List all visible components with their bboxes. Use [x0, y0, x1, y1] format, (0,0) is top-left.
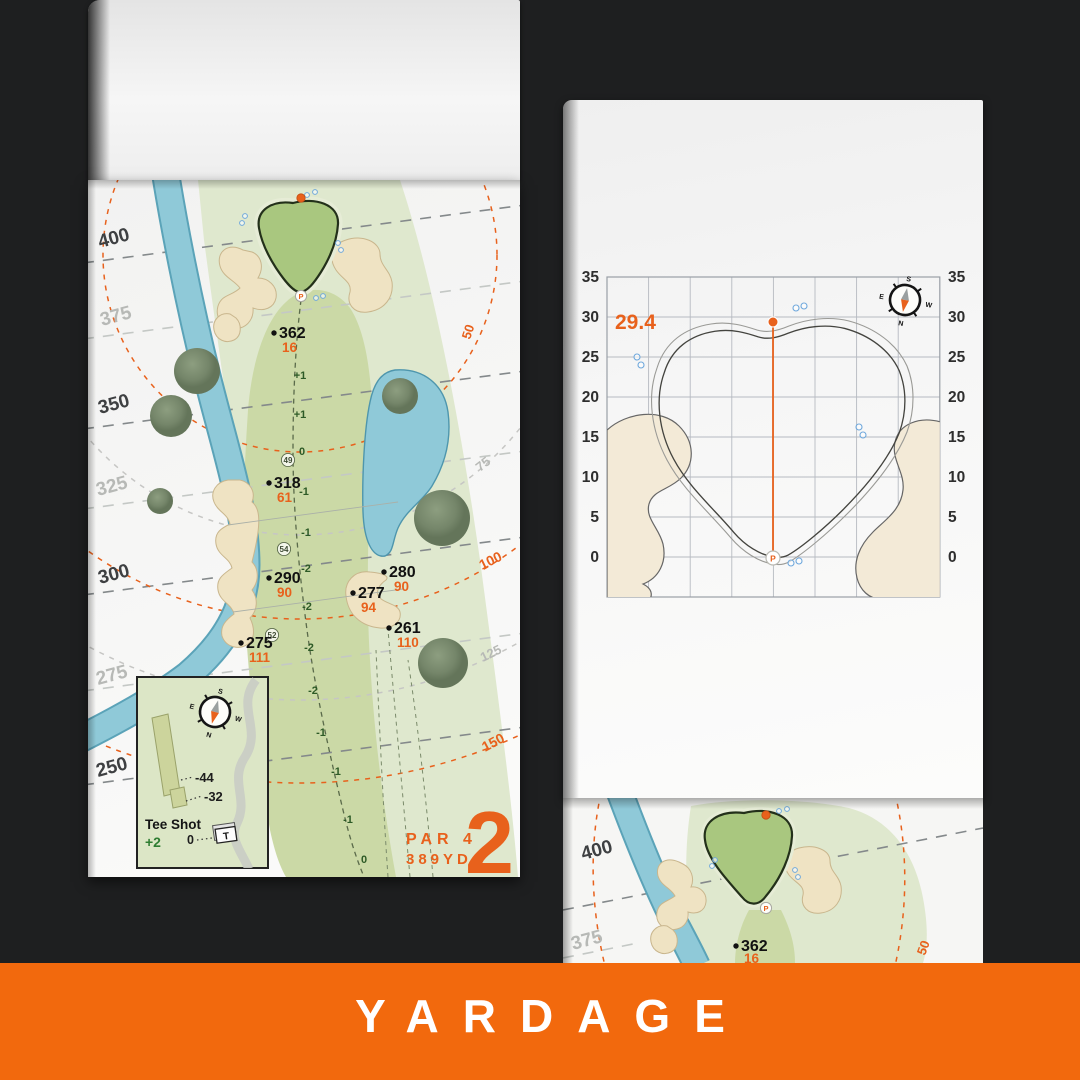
- tree: [414, 490, 470, 546]
- svg-text:-2: -2: [308, 685, 318, 697]
- yardage-book-poster: P 49 54 52 +1 +1 0 -1 -1 -2 -2 -2: [0, 0, 1080, 1080]
- green-outline: [652, 319, 913, 565]
- svg-text:10: 10: [948, 469, 965, 486]
- front-of-green-marker: P: [766, 551, 780, 565]
- front-marker-label: P: [298, 292, 303, 301]
- svg-text:20: 20: [948, 389, 965, 406]
- svg-text:10: 10: [582, 469, 599, 486]
- flipped-blank-page: [88, 0, 520, 180]
- front-of-green-marker: P: [295, 290, 306, 301]
- hole-map-svg: P 49 54 52 +1 +1 0 -1 -1 -2 -2 -2: [88, 180, 520, 877]
- svg-text:0: 0: [948, 549, 957, 566]
- svg-text:111: 111: [249, 650, 271, 665]
- tree: [382, 378, 418, 414]
- tree: [147, 488, 173, 514]
- svg-text:25: 25: [948, 349, 966, 366]
- svg-text:94: 94: [361, 600, 377, 615]
- svg-text:-2: -2: [302, 601, 312, 613]
- green-detail-page: P 29.4 3530 2520 1510 50 3530 2520 1: [563, 100, 983, 798]
- svg-text:375: 375: [98, 302, 134, 331]
- svg-text:325: 325: [94, 472, 130, 501]
- svg-text:W: W: [925, 302, 933, 310]
- svg-text:16: 16: [282, 340, 298, 355]
- bunker-greenside-left-low: [651, 926, 678, 954]
- svg-text:250: 250: [94, 753, 130, 781]
- next-page-svg: P 362 16 400 375 50: [563, 798, 983, 963]
- pin-position-dot: [762, 811, 770, 819]
- svg-text:S: S: [906, 276, 912, 284]
- tee-distance-zero: 0: [187, 833, 194, 847]
- bunker-greenside-left-low: [214, 314, 241, 342]
- svg-text:+1: +1: [294, 409, 307, 421]
- front-marker-label: P: [770, 554, 776, 564]
- svg-text:16: 16: [744, 951, 760, 963]
- detail-bunker-left: [607, 414, 691, 599]
- tree: [150, 395, 192, 437]
- svg-text:50: 50: [459, 323, 478, 341]
- svg-text:0: 0: [299, 446, 305, 458]
- svg-text:E: E: [879, 294, 885, 302]
- svg-text:75: 75: [473, 454, 494, 475]
- tee-inset-title: Tee Shot: [145, 817, 202, 832]
- svg-text:0: 0: [361, 854, 367, 866]
- svg-text:P: P: [763, 904, 768, 913]
- detail-bunkers: [607, 414, 941, 599]
- svg-text:N: N: [898, 320, 904, 328]
- svg-text:30: 30: [582, 309, 599, 326]
- green-detail-svg: P 29.4 3530 2520 1510 50 3530 2520 1: [563, 100, 983, 798]
- svg-text:0: 0: [590, 549, 599, 566]
- svg-text:90: 90: [394, 579, 409, 594]
- front-of-green-marker: P: [760, 902, 771, 913]
- svg-text:350: 350: [96, 390, 132, 418]
- next-hole-page: P 362 16 400 375 50: [563, 798, 983, 963]
- tree: [418, 638, 468, 688]
- pin-depth-value: 29.4: [615, 311, 656, 334]
- svg-text:20: 20: [582, 389, 599, 406]
- tee-marker-icon: T: [213, 823, 237, 844]
- yardage-banner: YARDAGE: [0, 963, 1080, 1080]
- svg-text:30: 30: [948, 309, 965, 326]
- svg-text:5: 5: [948, 509, 957, 526]
- svg-text:100: 100: [476, 548, 504, 573]
- svg-text:90: 90: [277, 585, 292, 600]
- depth-ticks-right: 3530 2520 1510 50: [948, 269, 966, 566]
- svg-text:375: 375: [569, 926, 605, 955]
- svg-text:-1: -1: [316, 727, 326, 739]
- svg-text:25: 25: [582, 349, 600, 366]
- tee-box-forward: [170, 787, 187, 808]
- distance-line-labels: 400 375: [569, 836, 615, 954]
- svg-text:5: 5: [590, 509, 599, 526]
- pin-position-dot: [297, 194, 305, 202]
- svg-text:35: 35: [582, 269, 600, 286]
- tee-elevation: +2: [145, 834, 161, 850]
- svg-text:400: 400: [96, 224, 132, 252]
- svg-text:-1: -1: [301, 527, 311, 539]
- svg-text:110: 110: [397, 635, 419, 650]
- svg-text:300: 300: [96, 560, 132, 588]
- svg-text:35: 35: [948, 269, 966, 286]
- hole-number: 2: [465, 793, 514, 877]
- svg-text:400: 400: [579, 836, 615, 864]
- hole-map-page: P 49 54 52 +1 +1 0 -1 -1 -2 -2 -2: [88, 180, 520, 877]
- banner-title: YARDAGE: [331, 989, 749, 1043]
- svg-text:-2: -2: [301, 563, 311, 575]
- svg-text:-1: -1: [343, 814, 353, 826]
- tee-distance-right: -32: [204, 789, 223, 804]
- compass-icon: S N W E: [875, 272, 937, 333]
- depth-ticks-left: 3530 2520 1510 50: [582, 269, 600, 566]
- svg-text:15: 15: [948, 429, 966, 446]
- svg-text:61: 61: [277, 490, 293, 505]
- tree: [174, 348, 220, 394]
- detail-bunker-right: [856, 420, 941, 599]
- width-value: 49: [284, 456, 293, 465]
- svg-text:15: 15: [582, 429, 600, 446]
- yardage-label: 389YD: [406, 851, 472, 868]
- svg-text:-1: -1: [331, 766, 341, 778]
- pin-position-dot: [768, 317, 778, 327]
- width-value: 54: [280, 545, 289, 554]
- svg-text:+1: +1: [294, 370, 307, 382]
- tee-distance-left: -44: [195, 770, 215, 785]
- tee-shot-inset: -44 -32 0 T Tee Shot +2: [137, 677, 268, 869]
- svg-text:-2: -2: [304, 642, 314, 654]
